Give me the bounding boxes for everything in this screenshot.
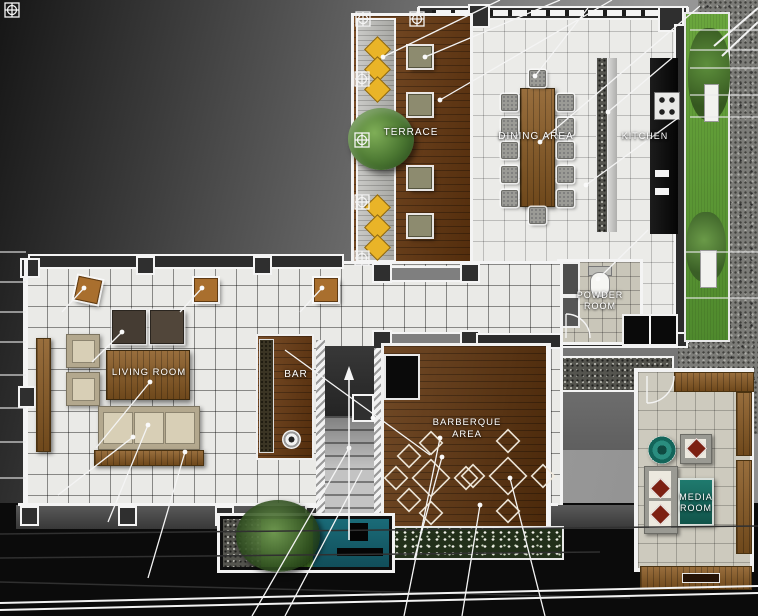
floor-plan-canvas: TERRACE DINING AREA KITCHEN POWDER ROOM … bbox=[0, 0, 758, 616]
annotation-overlay bbox=[0, 0, 758, 616]
room-label-barbeque: BARBERQUE AREA bbox=[420, 417, 514, 441]
room-label-dining: DINING AREA bbox=[486, 131, 586, 144]
room-label-living: LIVING ROOM bbox=[102, 367, 196, 379]
site-boundary-lines bbox=[0, 8, 758, 610]
room-label-bar: BAR bbox=[276, 369, 316, 382]
ground-lines bbox=[0, 526, 758, 598]
room-label-powder: POWDER ROOM bbox=[572, 290, 628, 313]
leader-dots bbox=[82, 55, 611, 508]
survey-target-icons bbox=[5, 3, 424, 265]
door-swing bbox=[566, 314, 674, 403]
room-label-terrace: TERRACE bbox=[370, 127, 452, 140]
dimension-lines bbox=[0, 30, 758, 478]
room-label-kitchen: KITCHEN bbox=[608, 131, 682, 142]
room-label-media: MEDIA ROOM bbox=[672, 492, 720, 515]
